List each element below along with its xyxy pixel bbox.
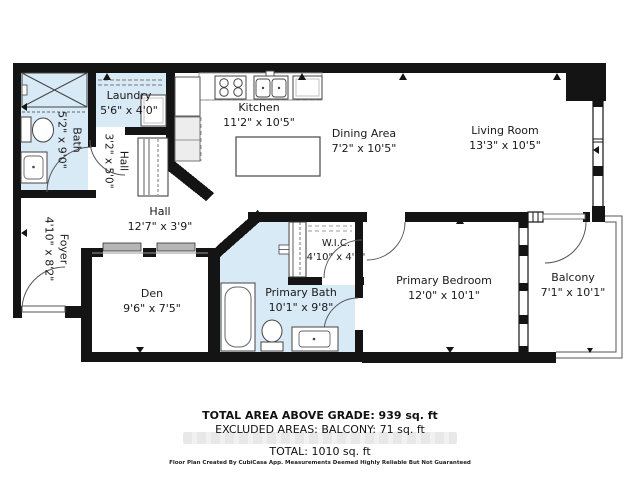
room-dims: 7'1" x 10'1" (541, 286, 606, 301)
room-label-hall-small: Hall 3'2" x 5'0" (102, 133, 131, 188)
room-label-den: Den 9'6" x 7'5" (123, 287, 181, 316)
room-name: Living Room (469, 124, 541, 139)
room-dims: 12'7" x 3'9" (128, 220, 193, 235)
room-label-dining: Dining Area 7'2" x 10'5" (332, 127, 397, 156)
bathtub (221, 283, 255, 351)
wall-bottom-main (81, 352, 362, 362)
wall-wic-bottom-a (288, 277, 322, 285)
wall-bath-right (88, 73, 96, 147)
balcony-top-window (528, 212, 543, 222)
wall-mid-a (248, 212, 367, 222)
sliding-panel (157, 243, 195, 251)
wall-corner-block-tr (566, 63, 606, 101)
room-name: Bath (69, 111, 84, 169)
room-name: Primary Bedroom (396, 274, 492, 289)
wall-den-left (81, 248, 92, 361)
living-room-window (593, 101, 603, 212)
dishwasher (293, 76, 322, 99)
bedroom-door-arc (367, 222, 405, 260)
pocket-door-symbol (279, 245, 289, 254)
total-area: TOTAL: 1010 sq. ft (0, 445, 640, 458)
room-name: Foyer (56, 217, 71, 282)
wall-laundry-bottom-a (88, 127, 93, 135)
room-dims: 3'2" x 5'0" (102, 133, 117, 188)
room-name: W.I.C. (307, 237, 366, 251)
total-area-above-grade: TOTAL AREA ABOVE GRADE: 939 sq. ft (0, 409, 640, 422)
room-name: Laundry (100, 89, 158, 104)
room-name: Balcony (541, 271, 606, 286)
room-label-hall: Hall 12'7" x 3'9" (128, 205, 193, 234)
excluded-areas: EXCLUDED AREAS: BALCONY: 71 sq. ft (0, 423, 640, 436)
room-name: Kitchen (223, 101, 295, 116)
room-label-wic: W.I.C. 4'10" x 4'6" (307, 237, 366, 264)
stove (215, 76, 246, 99)
wall-laundry-right (166, 63, 175, 135)
toilet (21, 117, 54, 142)
fridge (175, 77, 200, 116)
room-dims: 12'0" x 10'1" (396, 289, 492, 304)
wall-foyer-bottom-a (13, 306, 22, 318)
room-name: Hall (128, 205, 193, 220)
wall-bedroom-bottom (362, 352, 556, 363)
room-label-kitchen: Kitchen 11'2" x 10'5" (223, 101, 295, 130)
wall-den-right (208, 248, 220, 362)
room-label-living: Living Room 13'3" x 10'5" (469, 124, 541, 153)
bedroom-balcony-window (519, 222, 528, 352)
bath-vanity (21, 152, 47, 183)
room-label-primary-bath: Primary Bath 10'1" x 9'8" (265, 286, 337, 315)
kitchen-cabinet (175, 117, 200, 161)
room-dims: 5'6" x 4'0" (100, 104, 158, 119)
wall-bedroom-left-b (355, 330, 363, 354)
floorplan-page: Laundry 5'6" x 4'0" Kitchen 11'2" x 10'5… (0, 0, 640, 480)
kitchen-island (236, 137, 320, 176)
room-name: Dining Area (332, 127, 397, 142)
room-dims: 4'10" x 4'6" (307, 251, 366, 265)
disclaimer: Floor Plan Created By CubiCasa App. Meas… (0, 460, 640, 466)
wall-top (13, 63, 593, 73)
room-dims: 7'2" x 10'5" (332, 142, 397, 157)
wall-mid-b (405, 212, 528, 222)
room-label-balcony: Balcony 7'1" x 10'1" (541, 271, 606, 300)
balcony-door-track (543, 214, 585, 219)
wall-bath-corner (88, 190, 96, 198)
room-dims: 5'2" x 9'0" (55, 111, 70, 169)
room-dims: 13'3" x 10'5" (469, 139, 541, 154)
room-dims: 4'10" x 8'2" (42, 217, 57, 282)
room-label-primary-bedroom: Primary Bedroom 12'0" x 10'1" (396, 274, 492, 303)
wall-left (13, 63, 21, 318)
primary-toilet (261, 320, 283, 351)
room-dims: 10'1" x 9'8" (265, 301, 337, 316)
wall-diagonal-kitchen (162, 159, 214, 201)
room-dims: 11'2" x 10'5" (223, 116, 295, 131)
room-name: Hall (116, 133, 131, 188)
entry-door-leaf (22, 306, 65, 312)
room-label-bath: Bath 5'2" x 9'0" (55, 111, 84, 169)
room-label-foyer: Foyer 4'10" x 8'2" (42, 217, 71, 282)
sliding-panel (103, 243, 141, 251)
room-name: Primary Bath (265, 286, 337, 301)
room-dims: 9'6" x 7'5" (123, 302, 181, 317)
room-label-laundry: Laundry 5'6" x 4'0" (100, 89, 158, 118)
hall-closet (138, 138, 168, 196)
wall-bath-bottom (21, 190, 88, 198)
primary-vanity (292, 327, 338, 351)
room-name: Den (123, 287, 181, 302)
balcony-door-arc (545, 222, 586, 263)
faucet (266, 71, 274, 76)
